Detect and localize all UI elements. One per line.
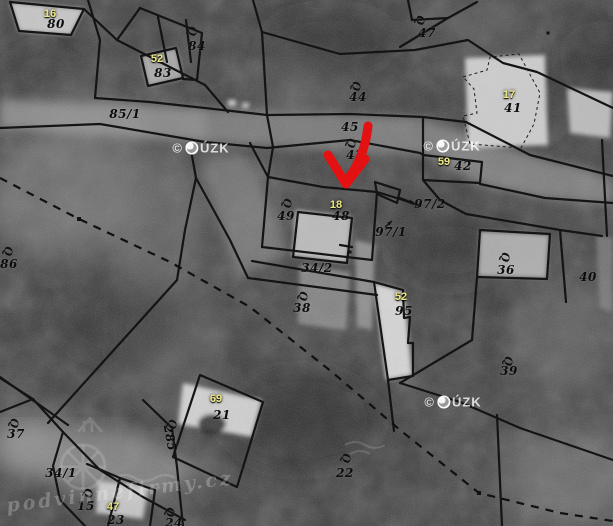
red-arrow-annotation xyxy=(0,0,613,526)
cuzk-globe-icon xyxy=(436,140,449,153)
cuzk-copyright-watermark: © ÚZK xyxy=(424,395,481,410)
cuzk-copyright-watermark: © ÚZK xyxy=(423,139,480,154)
cuzk-globe-icon xyxy=(437,396,450,409)
cadastral-map-view[interactable]: 80848385/144454347414297/297/149488634/2… xyxy=(0,0,613,526)
cuzk-globe-icon xyxy=(185,142,198,155)
cuzk-copyright-watermark: © ÚZK xyxy=(172,141,229,156)
